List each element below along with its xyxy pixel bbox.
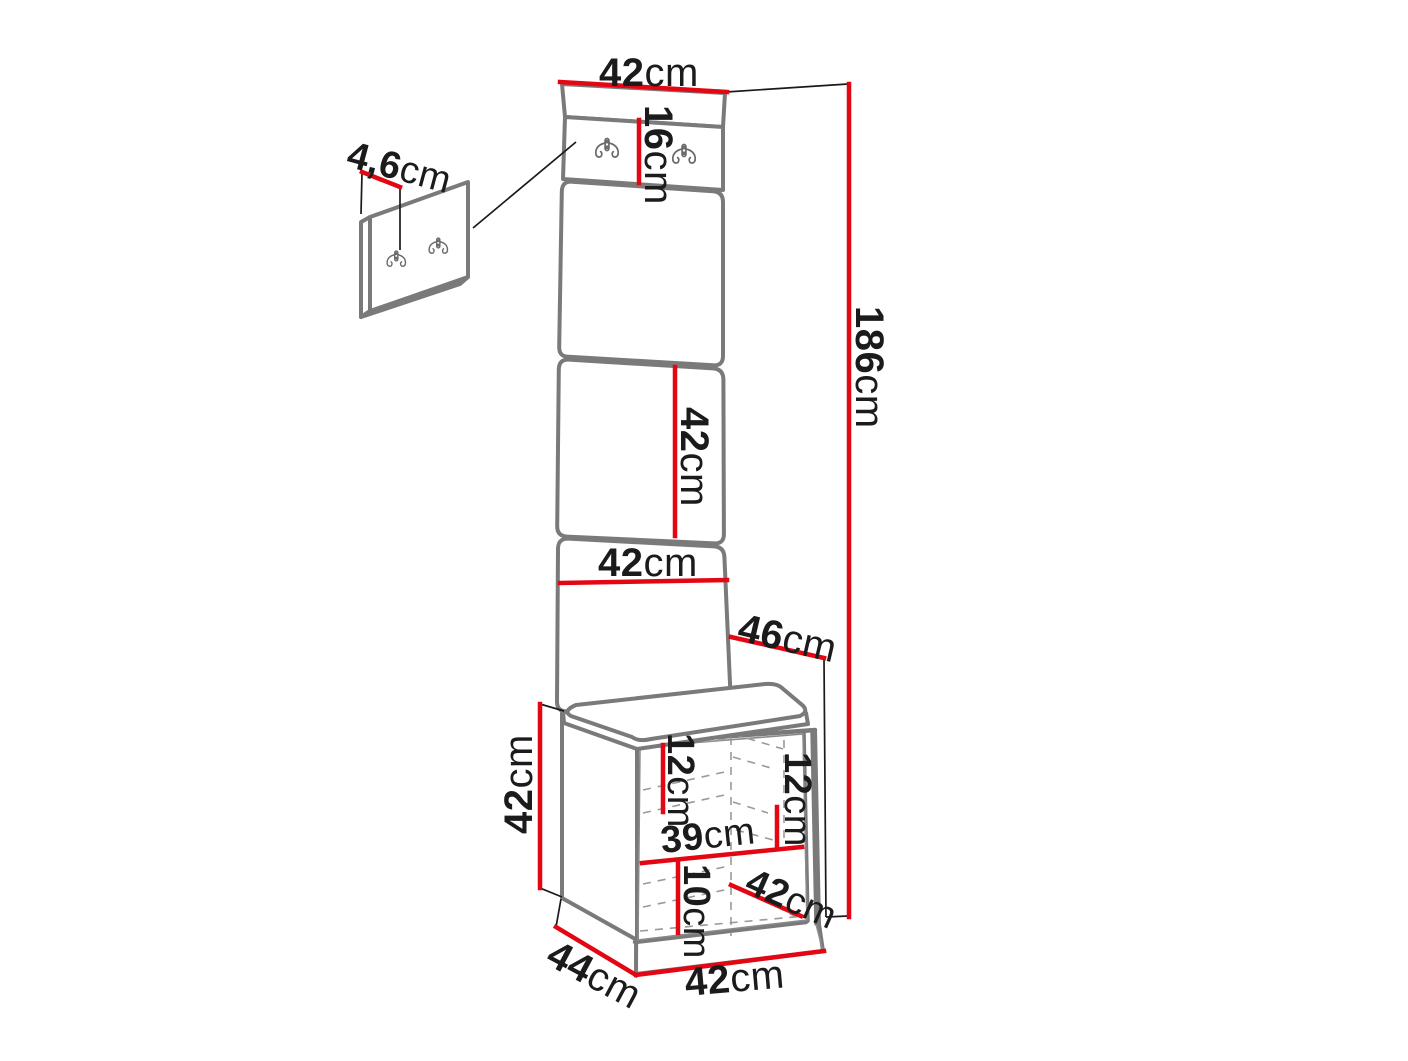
dim-label-cabinet-height: 42cm — [497, 734, 541, 834]
diagram-page: 42cm 16cm 4,6cm 186cm 42cm 42cm 46cm 42c… — [0, 0, 1408, 1056]
wall-hook-panel-detail — [361, 182, 468, 317]
dim-label-hook-panel-height: 16cm — [636, 105, 680, 205]
extension-total-height-top — [726, 84, 848, 92]
dim-label-total-height: 186cm — [847, 306, 891, 429]
dim-label-middle-panel-height: 42cm — [672, 407, 716, 507]
extension-seat-depth — [824, 659, 826, 917]
dim-label-top-width: 42cm — [599, 51, 699, 95]
dim-label-left-shelf-gap: 12cm — [659, 733, 701, 828]
dim-label-cabinet-depth: 44cm — [540, 932, 649, 1018]
furniture-dimension-drawing: 42cm 16cm 4,6cm 186cm 42cm 42cm 46cm 42c… — [0, 0, 1408, 1056]
upholstered-panel-1 — [559, 182, 723, 366]
dim-label-right-shelf-gap: 12cm — [776, 752, 818, 847]
dim-label-bottom-gap: 10cm — [675, 864, 717, 959]
detail-panel-front-face — [370, 182, 468, 311]
dim-label-cabinet-width: 42cm — [683, 952, 786, 1005]
dim-label-seat-depth: 46cm — [734, 606, 841, 671]
extension-cabinet-depth — [556, 899, 561, 927]
dim-label-lower-panel-width: 42cm — [598, 541, 698, 585]
extension-cabinet-height-bottom — [540, 888, 562, 897]
